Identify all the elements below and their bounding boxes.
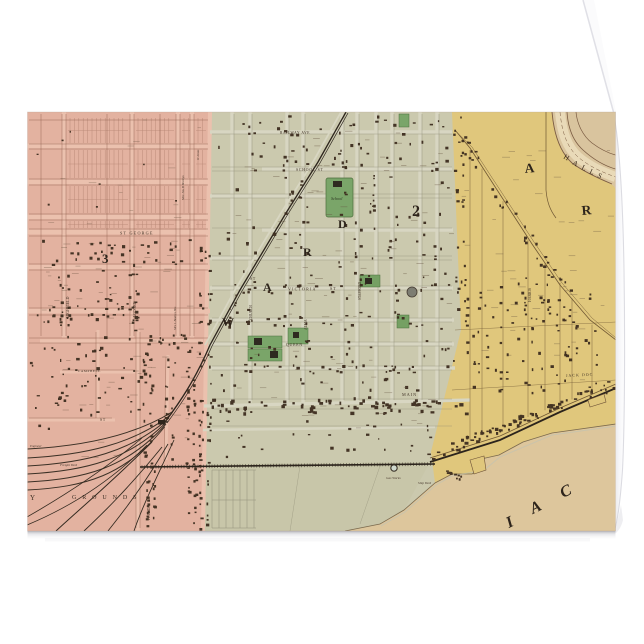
svg-text:CAMPBELL: CAMPBELL [78, 369, 101, 373]
svg-text:Engineer: Engineer [29, 444, 42, 448]
svg-text:R: R [303, 245, 312, 259]
svg-text:VICTORIA: VICTORIA [288, 287, 317, 292]
svg-text:Mrs L Beattys Hrs: Mrs L Beattys Hrs [173, 306, 177, 331]
svg-text:ST: ST [250, 277, 256, 281]
svg-text:RAILWAY AVE: RAILWAY AVE [280, 131, 310, 135]
svg-text:ST GEORGE: ST GEORGE [120, 231, 154, 236]
svg-text:HARRIS: HARRIS [528, 288, 532, 302]
svg-text:MAIN: MAIN [402, 392, 417, 397]
svg-text:STAFFORD: STAFFORD [358, 282, 362, 300]
svg-text:HIGHFIELD: HIGHFIELD [65, 297, 70, 318]
svg-text:2: 2 [412, 203, 420, 220]
svg-text:ALMA: ALMA [304, 319, 308, 330]
svg-text:School: School [331, 196, 343, 201]
svg-text:QUEEN: QUEEN [286, 343, 303, 347]
svg-text:Ship Yard: Ship Yard [418, 481, 431, 485]
svg-text:ACCORD: ACCORD [132, 301, 137, 318]
svg-text:Y: Y [30, 494, 35, 502]
svg-text:FOUNDRY: FOUNDRY [147, 502, 151, 520]
svg-text:G R O U N D S: G R O U N D S [72, 495, 139, 501]
svg-text:3: 3 [102, 251, 109, 266]
svg-text:Mrs Jas B Beattys: Mrs Jas B Beattys [181, 175, 185, 201]
svg-text:A: A [263, 280, 272, 294]
svg-text:ST: ST [100, 418, 106, 422]
svg-text:Freight Yard: Freight Yard [59, 463, 77, 467]
svg-text:SCHOOL ST: SCHOOL ST [296, 168, 324, 172]
svg-text:W: W [222, 315, 234, 329]
svg-text:A: A [524, 160, 535, 176]
svg-text:Gas Works: Gas Works [386, 476, 401, 480]
svg-text:CHURCH: CHURCH [249, 305, 253, 320]
svg-text:O Jones: O Jones [196, 149, 200, 160]
svg-text:D: D [338, 217, 347, 231]
svg-text:R: R [581, 202, 592, 218]
svg-text:ST: ST [330, 286, 337, 291]
